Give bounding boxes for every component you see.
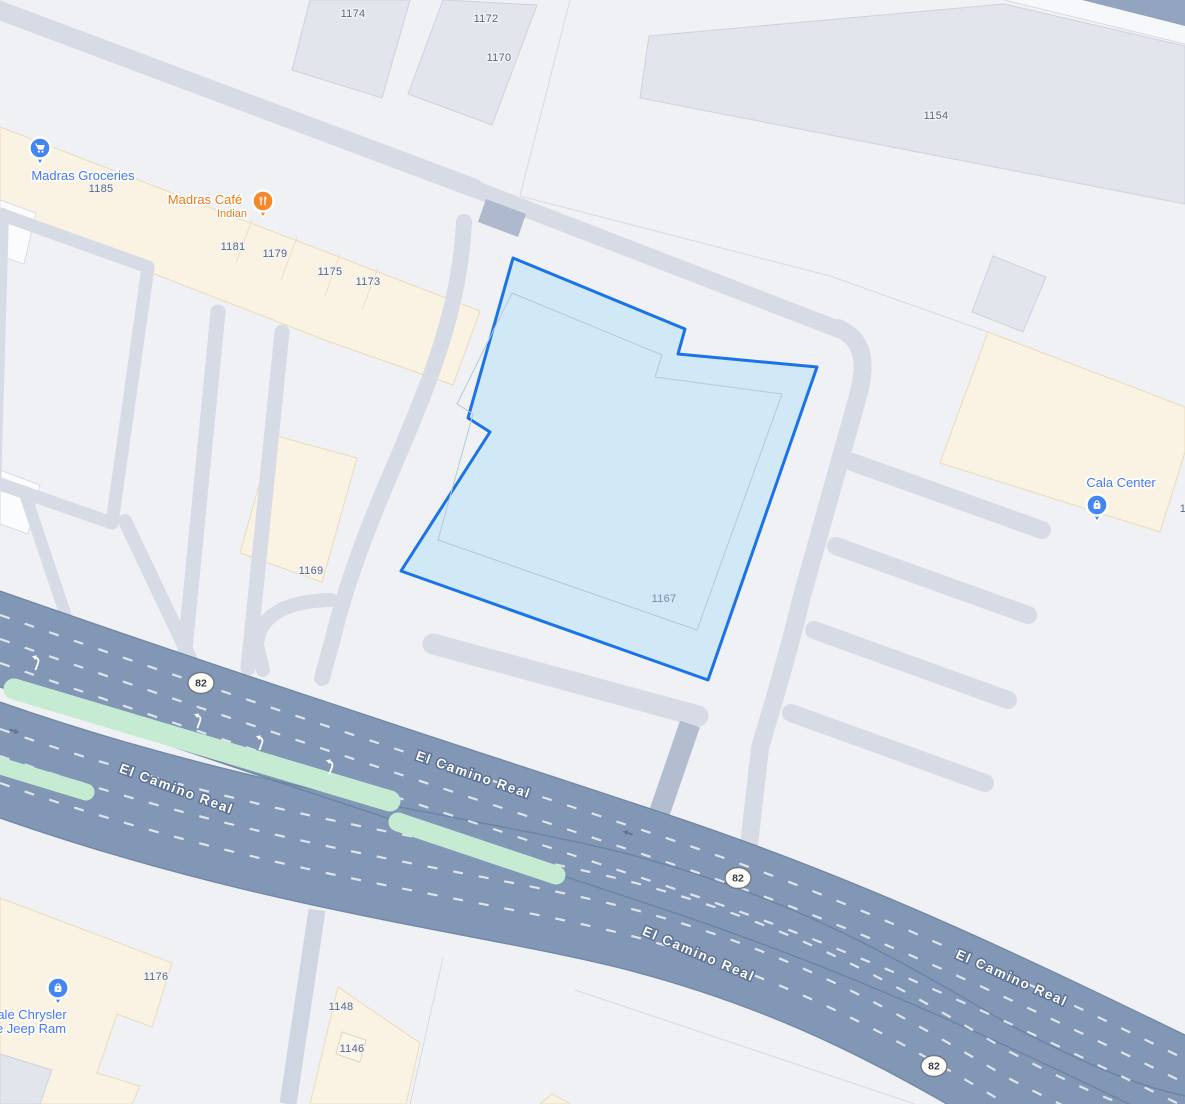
poi-label-line2[interactable]: e Jeep Ram: [0, 1021, 66, 1036]
route-shield-number: 82: [928, 1061, 940, 1073]
address-label: 1185: [89, 183, 114, 195]
poi-label-line1[interactable]: ale Chrysler: [0, 1007, 67, 1022]
address-label: 1170: [487, 52, 512, 64]
route-shield-number: 82: [195, 678, 207, 690]
route-shield: 82: [188, 673, 214, 694]
address-label: 1172: [474, 13, 499, 25]
poi-label[interactable]: Madras Café: [168, 192, 242, 207]
parcel-number-label: 1167: [652, 593, 677, 605]
address-label: 1146: [340, 1043, 365, 1055]
address-label: 1173: [356, 276, 381, 288]
poi-sublabel[interactable]: Indian: [217, 208, 247, 220]
address-label: 1169: [299, 565, 324, 577]
address-label: 1181: [221, 241, 246, 253]
address-label: 1179: [263, 248, 288, 260]
route-shield: 82: [725, 868, 751, 889]
pin-circle: [253, 191, 274, 212]
address-label: 1176: [144, 971, 169, 983]
address-label: 1174: [341, 8, 366, 20]
map-canvas[interactable]: 1174 1172 1170 1154 1185 1181 1179 1175 …: [0, 0, 1185, 1104]
address-label: 1175: [318, 266, 343, 278]
route-shield-number: 82: [732, 873, 744, 885]
address-label: 1154: [924, 110, 949, 122]
map-svg[interactable]: 1174 1172 1170 1154 1185 1181 1179 1175 …: [0, 0, 1185, 1104]
address-label-clipped: 1: [1180, 503, 1185, 515]
poi-label[interactable]: Cala Center: [1086, 475, 1156, 490]
address-label: 1148: [329, 1001, 354, 1013]
route-shield: 82: [921, 1056, 947, 1077]
poi-label[interactable]: Madras Groceries: [31, 168, 135, 183]
